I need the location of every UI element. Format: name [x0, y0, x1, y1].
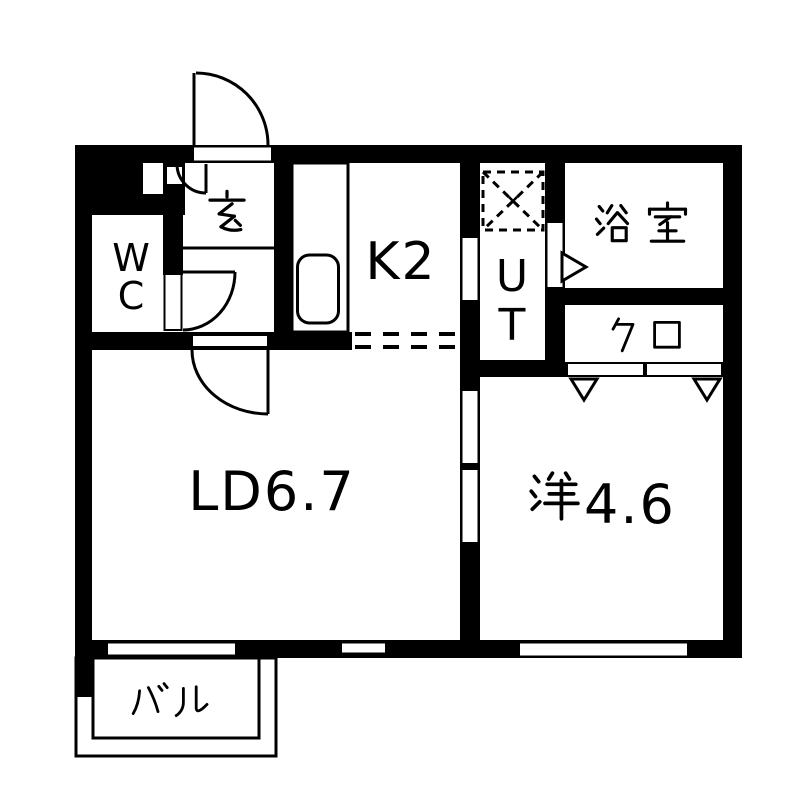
window-western — [519, 643, 688, 657]
kitchen-ut-opening — [462, 237, 479, 301]
genkan-label: 玄 — [213, 203, 243, 238]
wall-genkan-kitchen — [274, 163, 292, 332]
wall-wc-right — [163, 215, 183, 275]
floorplan: 玄 W C K2 U T 浴室 クロ LD6.7 4.6 洋4.6 バル — [0, 0, 800, 800]
kitchen-label: K2 — [365, 232, 436, 292]
balcony-label: バル — [144, 689, 200, 722]
western-room-label: 洋4.6 — [576, 493, 654, 528]
wall-left — [75, 145, 92, 697]
background — [0, 0, 800, 800]
entrance-opening — [193, 147, 272, 162]
wall-right — [723, 145, 742, 658]
utility-label-u: U — [496, 251, 528, 302]
window-small — [341, 643, 386, 654]
wc-label-c: C — [118, 274, 145, 318]
kitchen-sink — [298, 255, 339, 323]
shoe-cabinet-notch — [143, 163, 163, 194]
living-dining-label: LD6.7 — [188, 460, 356, 523]
closet-slider-right — [646, 363, 722, 376]
ld-door-opening — [192, 335, 268, 347]
bathroom-label: 浴室 — [615, 213, 675, 248]
utility-label-t: T — [498, 300, 526, 351]
wall-bath-bottom — [545, 288, 742, 305]
floorplan-svg: 玄 W C K2 U T 浴室 クロ LD6.7 4.6 洋4.6 バル — [0, 0, 800, 800]
window-ld — [107, 643, 236, 656]
ld-west-opening-upper — [462, 390, 479, 464]
closet-label: クロ — [616, 324, 672, 357]
wall-ut-bottom — [460, 360, 545, 377]
wc-door-slab — [165, 274, 182, 330]
closet-slider-left — [567, 363, 644, 376]
ld-west-opening-lower — [462, 469, 479, 543]
